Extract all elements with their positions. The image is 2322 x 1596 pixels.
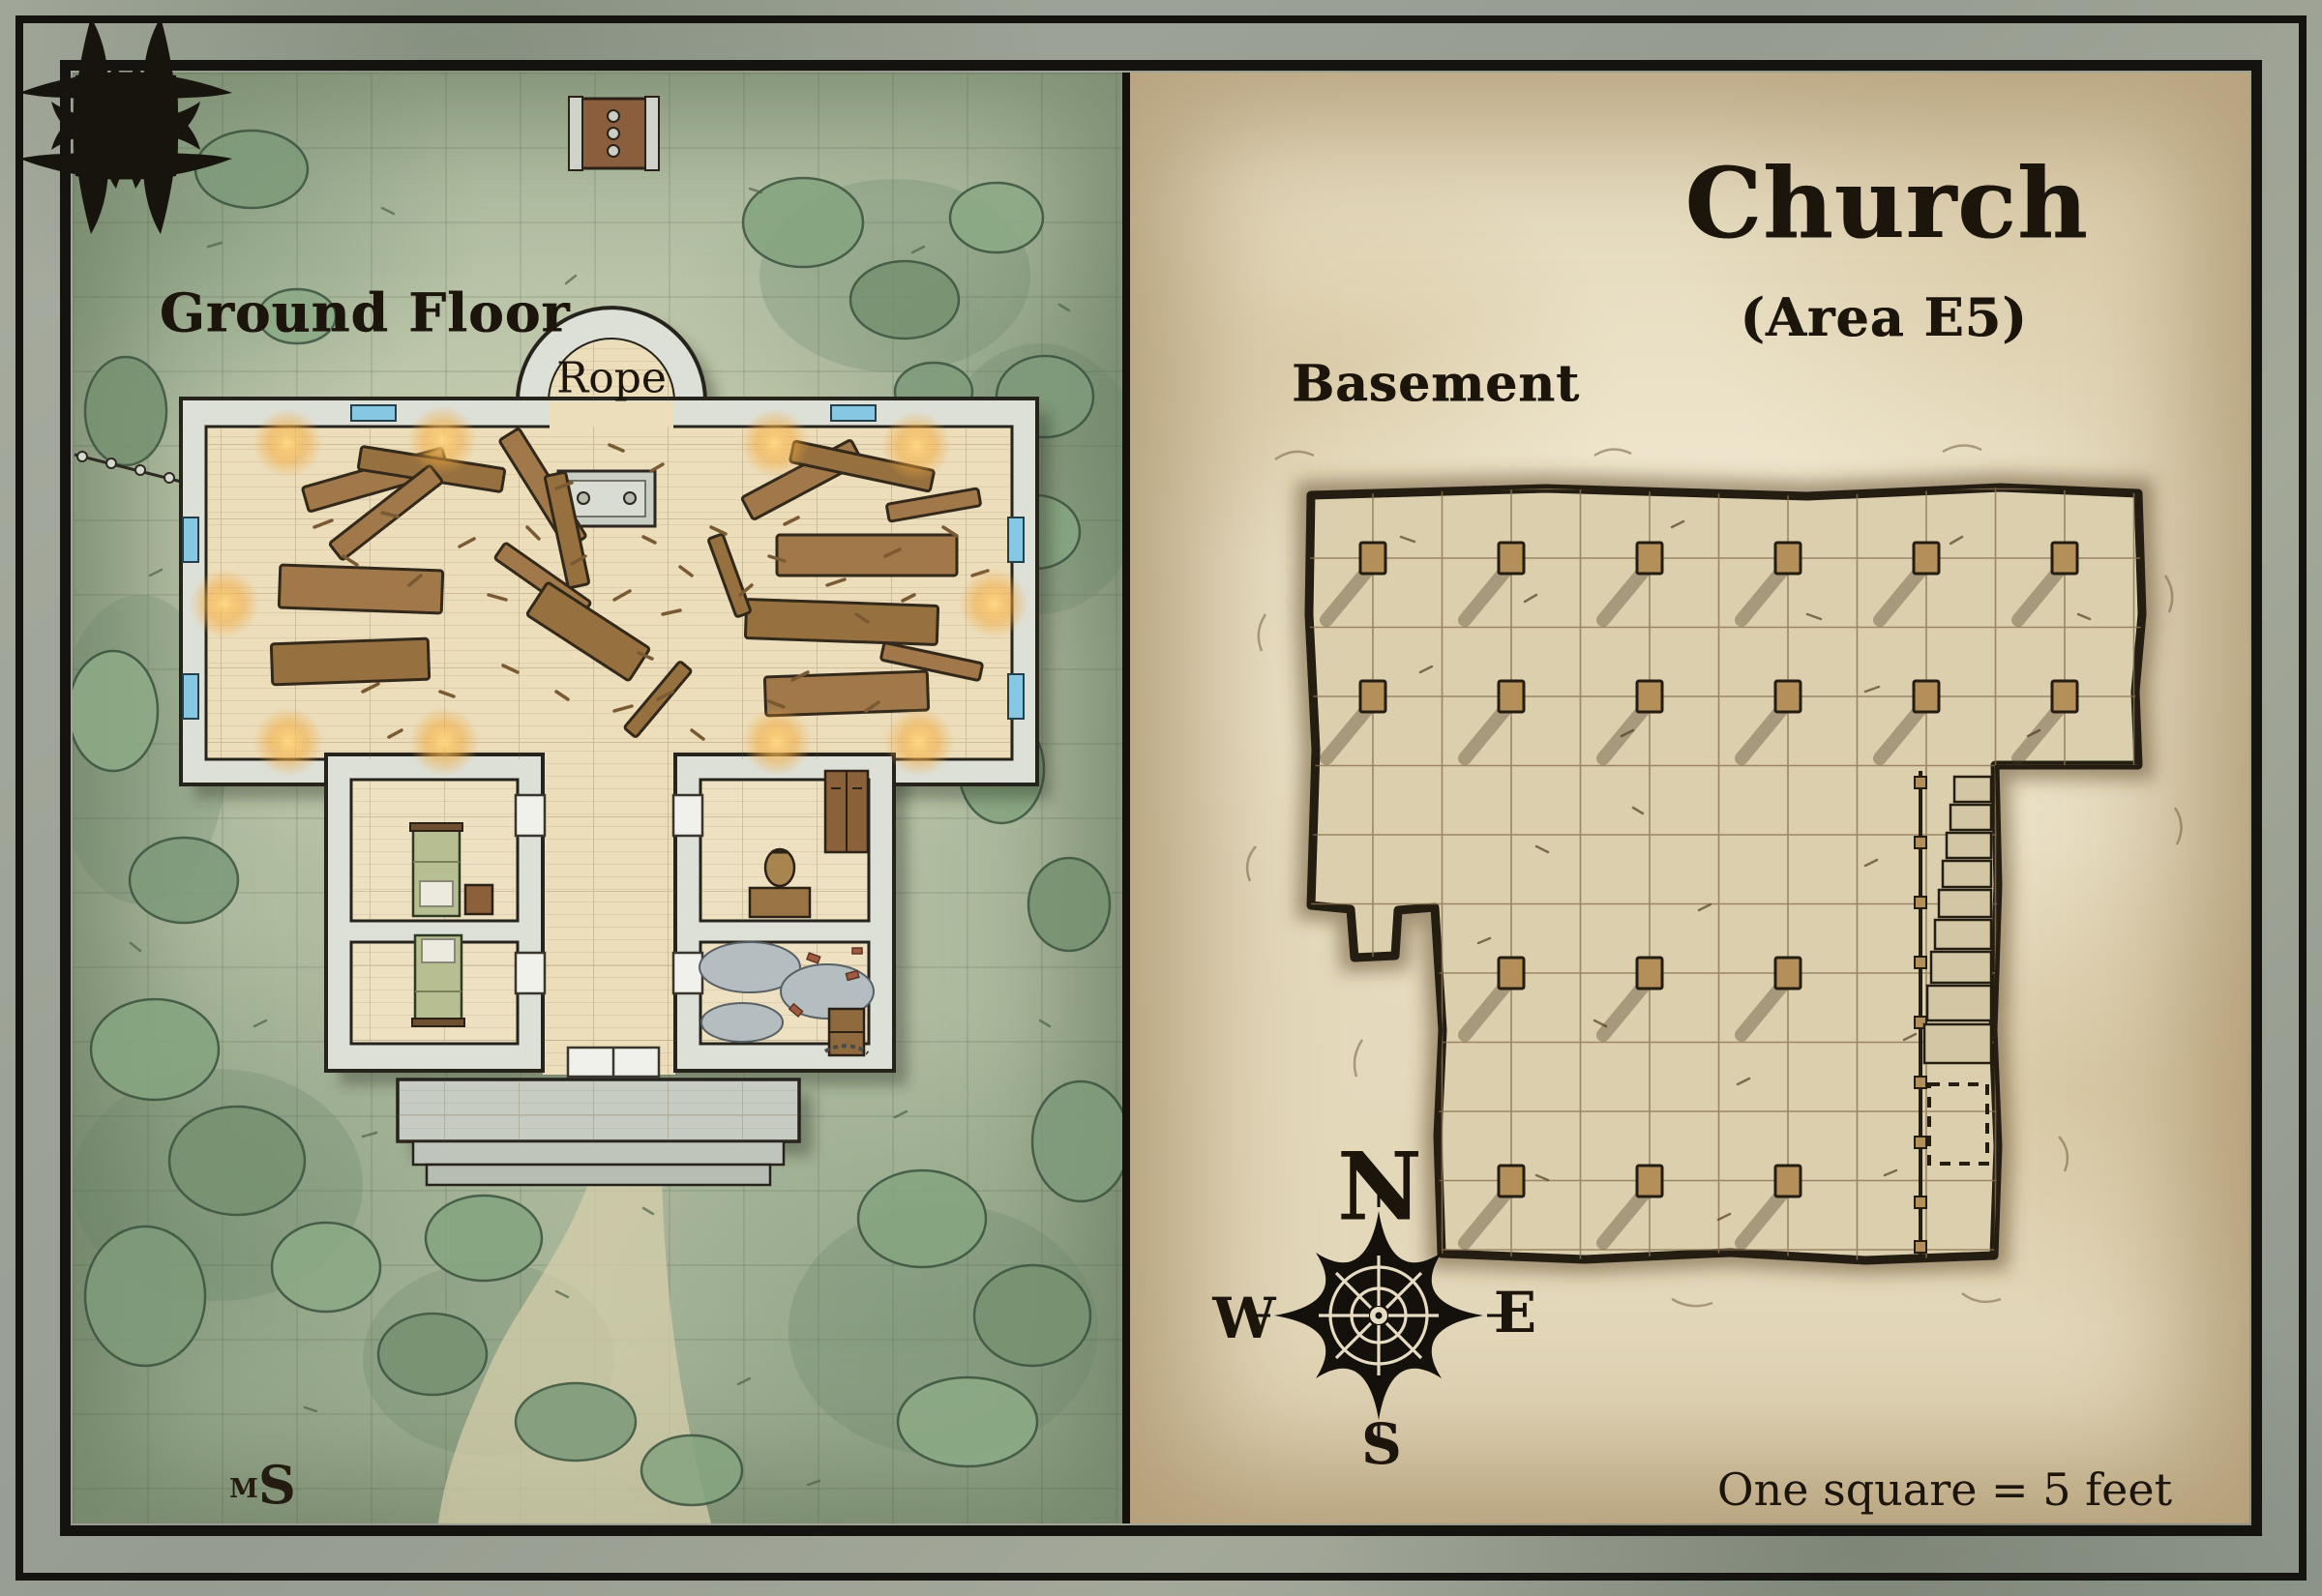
compass-south-label: S (1361, 1411, 1402, 1477)
map-content: Ground Floor Rope MS (73, 73, 2249, 1523)
ground-floor-title: Ground Floor (160, 281, 571, 344)
scale-note: One square = 5 feet (1717, 1463, 2172, 1516)
map-sheet: Ground Floor Rope MS (0, 0, 2322, 1596)
rope-label: Rope (556, 354, 667, 403)
basement-drawing (1130, 73, 2249, 1523)
compass-north-label: N (1337, 1133, 1422, 1242)
compass-west-label: W (1212, 1286, 1275, 1351)
basement-floor (1309, 488, 2142, 1260)
basement-panel: Church (Area E5) Basement N W E S One sq… (1130, 73, 2249, 1523)
basement-title: Basement (1292, 355, 1580, 414)
lychgate-shrine (569, 97, 659, 170)
bed-upper (410, 823, 462, 916)
artist-signature: MS (229, 1454, 296, 1516)
map-subtitle-area: (Area E5) (1740, 286, 2027, 348)
compass-east-label: E (1494, 1280, 1536, 1345)
nightstand (465, 885, 492, 914)
panel-divider (1122, 73, 1130, 1523)
wardrobe (825, 771, 868, 852)
signature-initial-s: S (258, 1454, 296, 1516)
ground-floor-panel: Ground Floor Rope MS (73, 73, 1122, 1523)
signature-initial-m: M (229, 1474, 258, 1504)
bed-lower (412, 935, 464, 1026)
apse-doorway (550, 401, 673, 429)
map-title: Church (1684, 146, 2088, 260)
chained-chest (825, 1009, 868, 1055)
